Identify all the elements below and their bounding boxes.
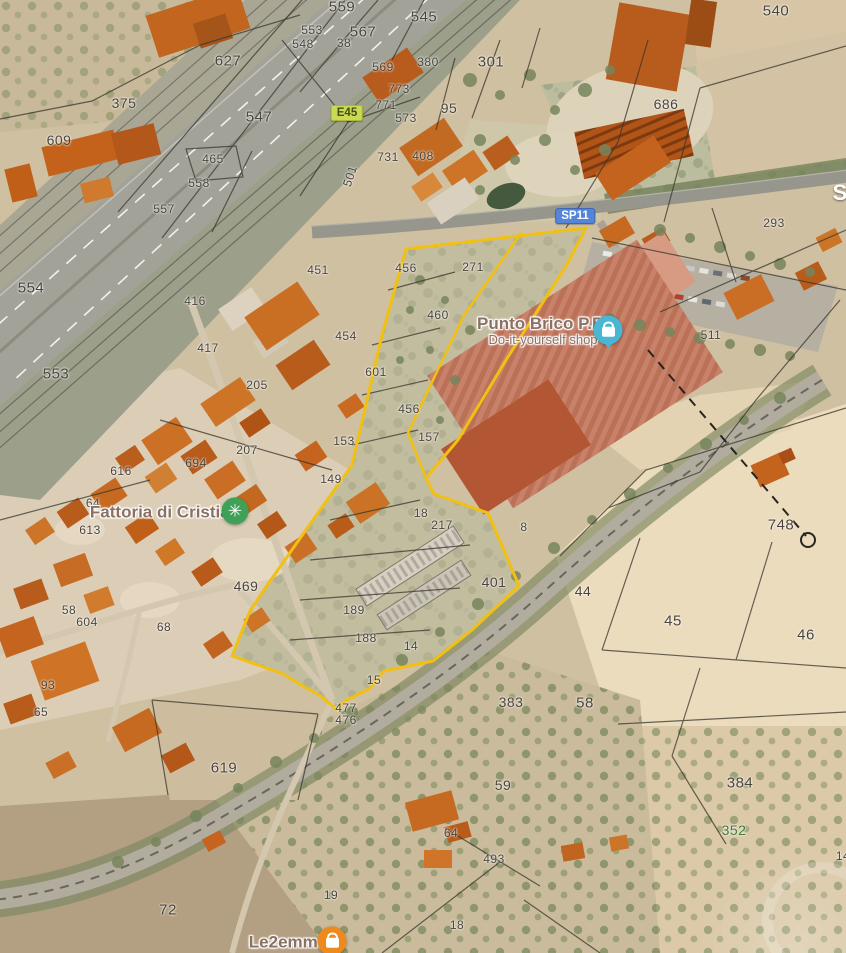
parcel-number-label: 44 <box>575 583 592 599</box>
parcel-number-label: 731 <box>377 150 399 164</box>
parcel-number-label: 554 <box>18 280 45 297</box>
parcel-number-label: 14 <box>836 849 846 863</box>
parcel-number-label: 553 <box>43 366 70 383</box>
poi-name[interactable]: Fattoria di Cristian <box>90 502 240 521</box>
parcel-number-label: 401 <box>482 574 507 590</box>
flower-icon[interactable] <box>222 498 249 525</box>
parcel-number-label: 454 <box>335 329 357 343</box>
parcel-number-label: 456 <box>395 261 417 275</box>
parcel-number-label: 456 <box>398 402 420 416</box>
parcel-number-label: 553 <box>301 23 323 37</box>
parcel-number-label: 548 <box>292 37 314 51</box>
parcel-number-label: 293 <box>763 216 785 230</box>
parcel-number-label: 773 <box>388 82 410 96</box>
poi-name[interactable]: Le2emme <box>249 932 327 951</box>
poi-subtitle: Do-it-yourself shop <box>477 333 609 348</box>
parcel-number-label: 46 <box>797 627 815 644</box>
parcel-number-label: 153 <box>333 434 355 448</box>
parcel-number-label: 540 <box>763 3 790 20</box>
parcel-number-label: 501 <box>340 164 360 189</box>
parcel-number-label: 64 <box>444 826 458 840</box>
parcel-number-label: 188 <box>355 631 377 645</box>
parcel-number-label: 65 <box>34 705 48 719</box>
parcel-number-label: 627 <box>215 53 242 70</box>
poi-name[interactable]: Punto Brico P.B. <box>477 314 609 333</box>
parcel-number-label: 93 <box>41 678 55 692</box>
parcel-number-label: 557 <box>153 202 175 216</box>
shopping-bag-icon[interactable] <box>594 316 623 345</box>
poi-label[interactable]: Fattoria di Cristian <box>90 502 240 521</box>
parcel-number-label: 18 <box>450 918 464 932</box>
parcel-number-label: 469 <box>234 578 259 594</box>
parcel-number-label: 686 <box>654 96 679 112</box>
parcel-number-label: 547 <box>246 109 273 126</box>
parcel-number-label: 38 <box>337 36 351 50</box>
poi-label[interactable]: Punto Brico P.B.Do-it-yourself shop <box>477 314 609 348</box>
road-badge-e45: E45 <box>331 105 363 121</box>
parcel-number-label: 58 <box>576 695 594 712</box>
parcel-number-label: 545 <box>411 9 438 26</box>
parcel-number-label: 149 <box>320 472 342 486</box>
parcel-number-label: 569 <box>372 60 394 74</box>
parcel-number-label: 558 <box>188 176 210 190</box>
parcel-number-label: 694 <box>185 456 207 470</box>
parcel-number-label: 416 <box>184 294 206 308</box>
parcel-number-label: 207 <box>236 443 258 457</box>
parcel-number-label: 157 <box>418 430 440 444</box>
parcel-number-label: 604 <box>76 615 98 629</box>
map-label-layer: 5595455675535483862730138056954068677377… <box>0 0 846 953</box>
parcel-number-label: 8 <box>520 520 527 534</box>
parcel-number-label: 95 <box>441 100 458 116</box>
parcel-number-label: 384 <box>727 775 754 792</box>
parcel-number-label: 271 <box>462 260 484 274</box>
parcel-number-label: 59 <box>495 777 512 793</box>
parcel-number-label: 380 <box>417 55 439 69</box>
road-name-partial-label: S <box>833 180 846 206</box>
parcel-number-label: 601 <box>365 365 387 379</box>
parcel-number-label: 609 <box>47 132 72 148</box>
parcel-number-label: 748 <box>768 517 795 534</box>
satellite-map[interactable]: 5595455675535483862730138056954068677377… <box>0 0 846 953</box>
parcel-number-label: 559 <box>329 0 356 16</box>
parcel-number-label: 217 <box>431 518 453 532</box>
parcel-number-label: 567 <box>350 24 377 41</box>
parcel-number-label: 375 <box>112 95 137 111</box>
parcel-number-label: 15 <box>367 673 381 687</box>
road-badge-sp11: SP11 <box>555 208 595 224</box>
parcel-number-label: 417 <box>197 341 219 355</box>
store-icon[interactable] <box>318 927 347 953</box>
poi-label[interactable]: Le2emme <box>249 932 327 951</box>
parcel-number-label: 511 <box>701 328 722 342</box>
parcel-number-label: 58 <box>62 603 76 617</box>
parcel-number-label: 68 <box>157 620 171 634</box>
parcel-number-label: 301 <box>478 54 505 71</box>
parcel-number-label: 771 <box>375 98 397 112</box>
parcel-number-label: 18 <box>414 506 428 520</box>
parcel-number-label: 613 <box>79 523 101 537</box>
parcel-number-label: 493 <box>483 852 505 866</box>
parcel-number-label: 45 <box>664 613 682 630</box>
parcel-number-label: 460 <box>427 308 449 322</box>
parcel-number-label: 19 <box>324 888 338 902</box>
parcel-number-label: 14 <box>404 639 418 653</box>
parcel-number-label: 383 <box>499 694 524 710</box>
parcel-number-label: 619 <box>211 760 238 777</box>
parcel-number-label: 476 <box>335 713 357 727</box>
parcel-number-label: 573 <box>395 111 417 125</box>
parcel-number-label: 189 <box>343 603 365 617</box>
parcel-number-label: 465 <box>202 152 224 166</box>
parcel-number-label: 205 <box>246 378 268 392</box>
parcel-number-label: 451 <box>307 263 329 277</box>
parcel-number-label: 352 <box>722 822 747 838</box>
parcel-number-label: 408 <box>412 149 434 163</box>
parcel-number-label: 616 <box>110 464 132 478</box>
parcel-number-label: 72 <box>159 902 177 919</box>
